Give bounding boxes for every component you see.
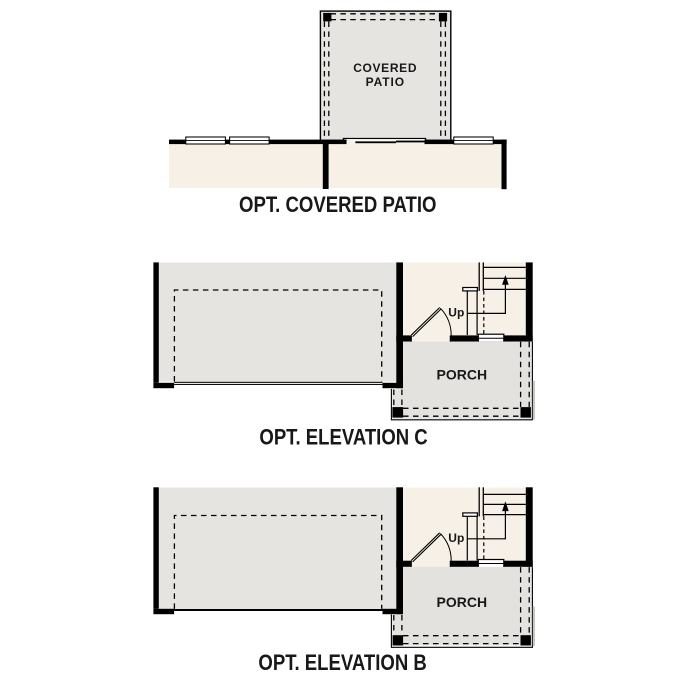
svg-text:PORCH: PORCH bbox=[437, 594, 488, 610]
svg-text:COVERED: COVERED bbox=[353, 61, 417, 75]
svg-text:Up: Up bbox=[448, 305, 464, 319]
svg-text:OPT. ELEVATION C: OPT. ELEVATION C bbox=[259, 424, 427, 449]
svg-text:OPT. ELEVATION B: OPT. ELEVATION B bbox=[258, 650, 426, 675]
svg-text:PATIO: PATIO bbox=[366, 75, 405, 89]
svg-text:OPT. COVERED PATIO: OPT. COVERED PATIO bbox=[239, 192, 437, 217]
svg-text:Up: Up bbox=[448, 531, 464, 545]
svg-text:PORCH: PORCH bbox=[437, 367, 488, 383]
